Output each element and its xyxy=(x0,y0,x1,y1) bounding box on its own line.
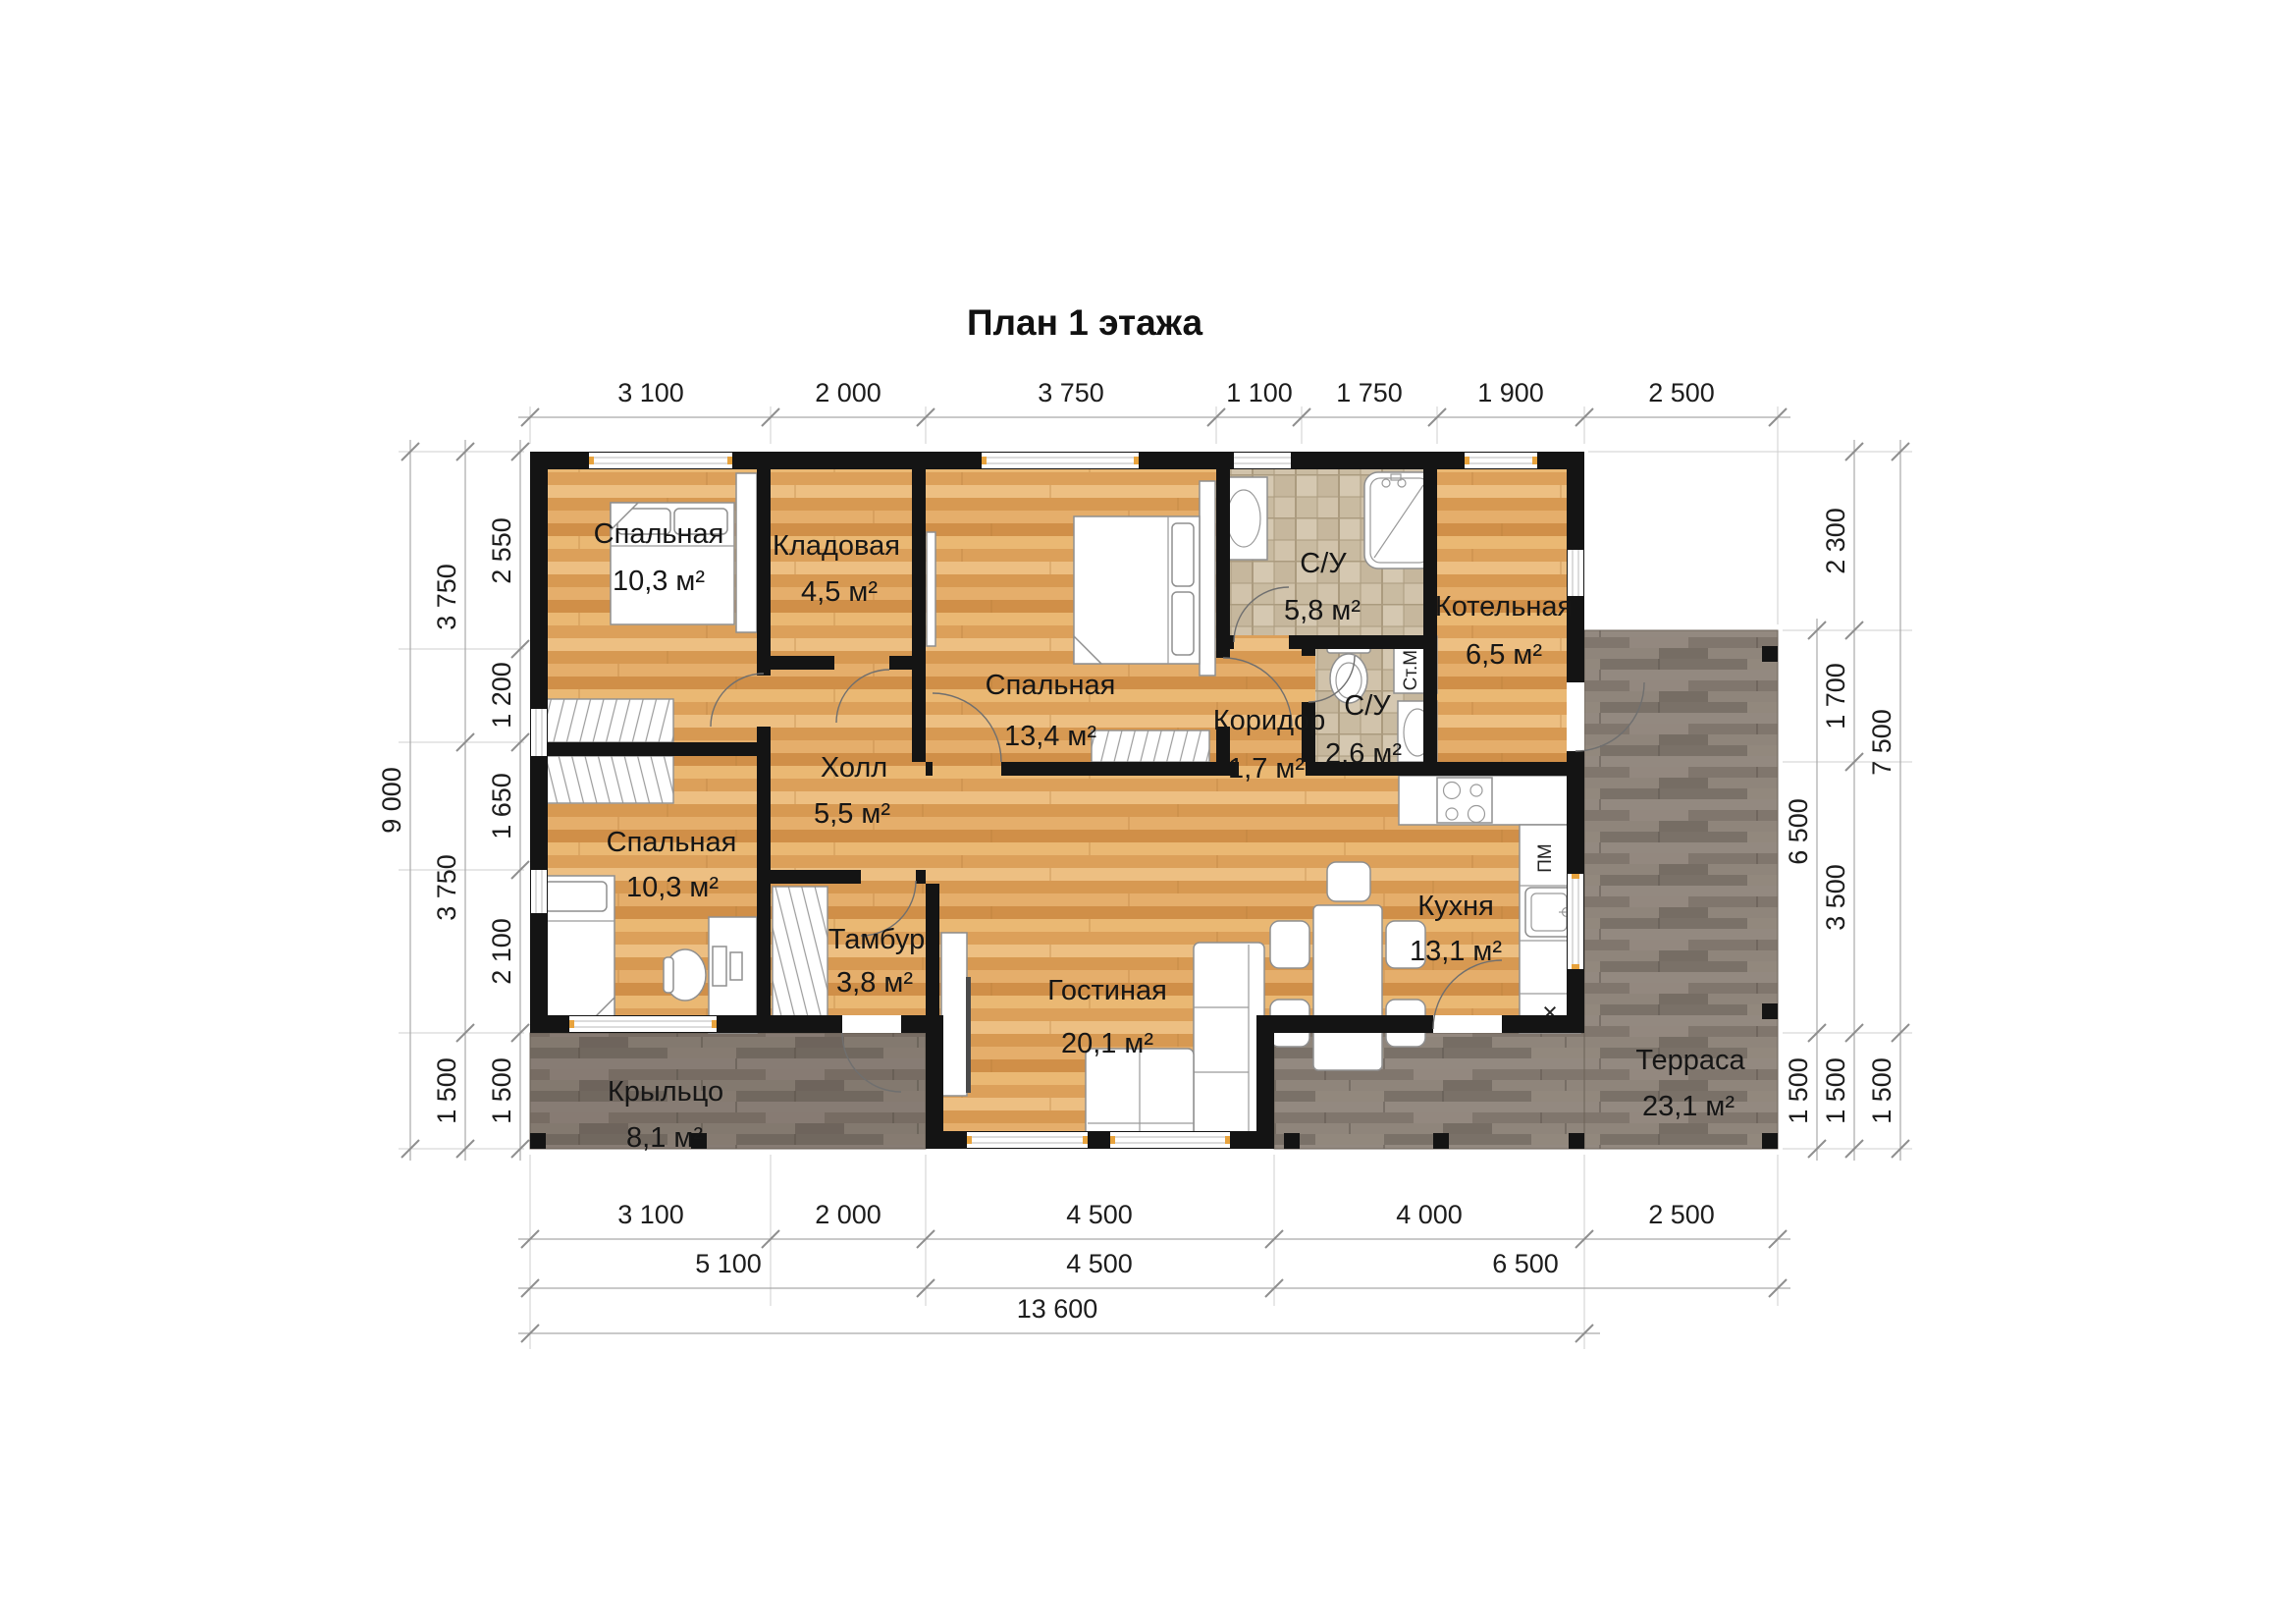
dimension-top: 3 100 2 000 3 750 1 100 1 750 1 900 2 50… xyxy=(617,378,1715,407)
room-name: Тамбур xyxy=(828,924,925,955)
kitchen-door-gap xyxy=(1433,1015,1502,1033)
room-area: 10,3 м² xyxy=(613,566,705,597)
room-name: Спальная xyxy=(607,827,737,858)
dim-label: 1 750 xyxy=(1336,378,1403,407)
washing-machine-label: Ст.М. xyxy=(1401,645,1421,691)
window xyxy=(1110,1132,1230,1148)
room-area: 5,5 м² xyxy=(814,798,890,830)
dim-label: 2 000 xyxy=(815,1200,881,1229)
dim-label: 6 500 xyxy=(1492,1249,1559,1278)
room-area: 3,8 м² xyxy=(836,967,913,999)
closet xyxy=(773,887,828,1030)
bedside-panel xyxy=(1200,481,1215,676)
porch-deck-tint xyxy=(530,1033,926,1149)
floor-plan-svg: План 1 этажа xyxy=(0,0,2296,1624)
dim-label: 4 500 xyxy=(1066,1249,1133,1278)
dishwasher-label: ПМ xyxy=(1535,843,1556,872)
dim-label: 2 550 xyxy=(487,517,516,584)
page-title: План 1 этажа xyxy=(967,302,1202,343)
room-area: 4,5 м² xyxy=(801,576,878,608)
room-name: Терраса xyxy=(1635,1045,1745,1076)
tv-unit xyxy=(941,933,971,1096)
dim-label: 2 500 xyxy=(1648,378,1715,407)
dim-label: 3 500 xyxy=(1821,864,1850,931)
room-area: 6,5 м² xyxy=(1466,639,1542,671)
dim-label: 3 750 xyxy=(432,564,461,630)
window xyxy=(1465,453,1537,468)
dim-label: 13 600 xyxy=(1017,1294,1098,1324)
dimension-bottom: 3 100 2 000 4 500 4 000 2 500 5 100 4 50… xyxy=(617,1200,1715,1324)
window xyxy=(589,453,732,468)
dim-label: 3 100 xyxy=(617,1200,684,1229)
window xyxy=(982,453,1139,468)
room-area: 5,8 м² xyxy=(1284,595,1361,626)
room-area: 13,1 м² xyxy=(1410,936,1502,967)
dim-label: 2 100 xyxy=(487,918,516,985)
dim-label: 1 500 xyxy=(432,1057,461,1124)
dim-label: 6 500 xyxy=(1784,798,1813,865)
room-name: С/У xyxy=(1344,690,1391,722)
dim-label: 1 100 xyxy=(1226,378,1293,407)
window xyxy=(967,1132,1088,1148)
dim-label: 1 900 xyxy=(1477,378,1544,407)
dim-label: 5 100 xyxy=(695,1249,762,1278)
room-area: 23,1 м² xyxy=(1642,1091,1735,1122)
room-area: 8,1 м² xyxy=(626,1122,703,1154)
dim-label: 1 500 xyxy=(487,1057,516,1124)
window xyxy=(1568,874,1583,969)
entry-door-gap xyxy=(842,1015,901,1033)
single-bed xyxy=(538,876,614,1025)
room-name: Холл xyxy=(821,752,887,784)
wardrobe xyxy=(546,756,673,803)
terrace-door-gap xyxy=(1567,682,1584,751)
room-area: 1,7 м² xyxy=(1228,753,1305,785)
dim-label: 9 000 xyxy=(377,767,406,834)
room-area: 13,4 м² xyxy=(1004,721,1096,752)
room-name: Гостиная xyxy=(1047,975,1167,1006)
room-area: 20,1 м² xyxy=(1061,1028,1153,1059)
tv xyxy=(966,977,971,1093)
dim-label: 1 650 xyxy=(487,773,516,839)
window xyxy=(569,1016,717,1032)
room-name: Крыльцо xyxy=(608,1076,723,1108)
dim-label: 1 700 xyxy=(1821,663,1850,730)
room-area: 2,6 м² xyxy=(1325,738,1402,770)
window xyxy=(1568,550,1583,596)
office-chair xyxy=(664,949,706,1001)
kitchen-sink xyxy=(1525,888,1573,937)
dimension-right: 6 500 1 500 2 300 1 700 3 500 1 500 7 50… xyxy=(1784,508,1896,1124)
window xyxy=(531,709,547,756)
room-name: Котельная xyxy=(1435,591,1573,623)
room-name: Спальная xyxy=(594,518,724,550)
dim-label: 2 500 xyxy=(1648,1200,1715,1229)
stove xyxy=(1437,778,1492,823)
room-area: 10,3 м² xyxy=(626,872,719,903)
window xyxy=(531,870,547,913)
dim-label: 2 000 xyxy=(815,378,881,407)
room-name: Спальная xyxy=(986,670,1116,701)
dresser xyxy=(736,473,757,632)
window xyxy=(1234,453,1291,468)
wardrobe xyxy=(546,699,673,742)
dim-label: 3 750 xyxy=(1038,378,1104,407)
mirror xyxy=(927,532,935,646)
dim-label: 3 100 xyxy=(617,378,684,407)
dim-label: 2 300 xyxy=(1821,508,1850,574)
double-bed xyxy=(1074,516,1200,664)
room-name: С/У xyxy=(1300,548,1347,579)
room-name: Коридор xyxy=(1213,705,1326,736)
dim-label: 4 000 xyxy=(1396,1200,1463,1229)
room-name: Кладовая xyxy=(773,530,900,562)
dim-label: 1 500 xyxy=(1821,1057,1850,1124)
dim-label: 1 200 xyxy=(487,662,516,729)
dim-label: 3 750 xyxy=(432,854,461,921)
dim-label: 1 500 xyxy=(1867,1057,1896,1124)
dim-label: 1 500 xyxy=(1784,1057,1813,1124)
dim-label: 7 500 xyxy=(1867,709,1896,776)
dim-label: 4 500 xyxy=(1066,1200,1133,1229)
room-name: Кухня xyxy=(1417,891,1494,922)
floor-plan-page: План 1 этажа xyxy=(0,0,2296,1624)
wardrobe xyxy=(1092,731,1209,762)
